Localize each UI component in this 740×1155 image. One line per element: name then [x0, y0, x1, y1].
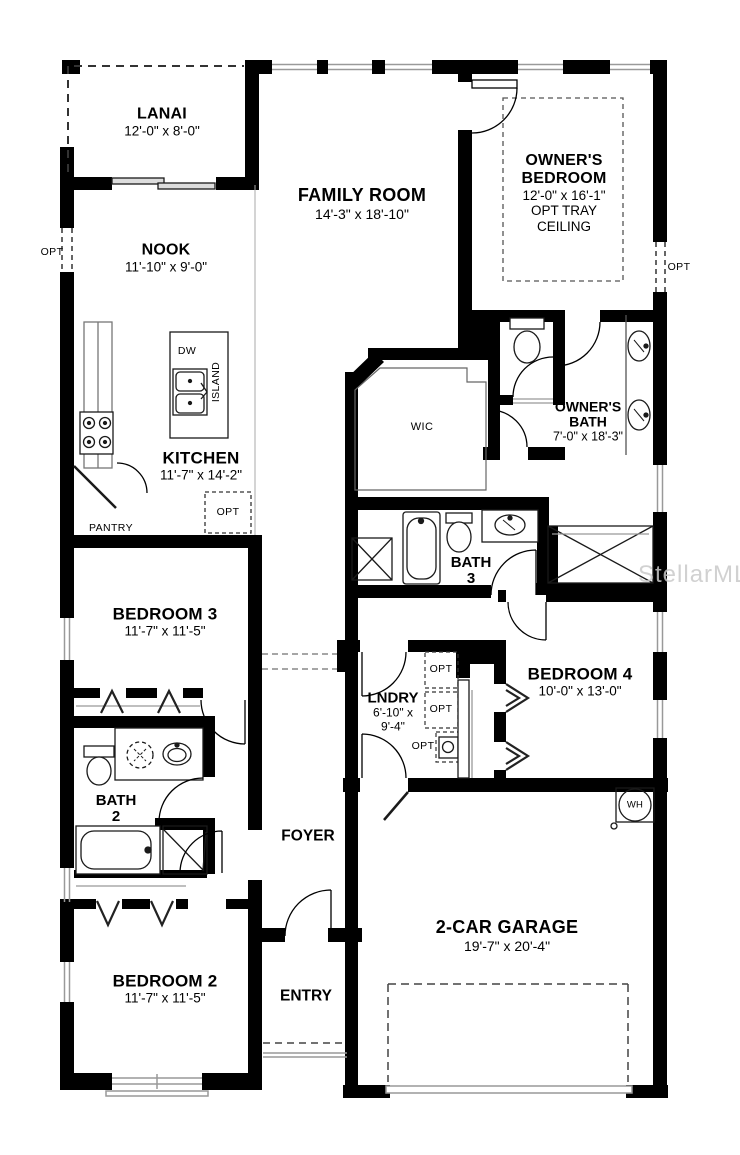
room-label-foyer: FOYER	[281, 829, 334, 846]
island-label: ISLAND	[210, 362, 222, 402]
bath2-door	[159, 778, 203, 822]
hall-closet	[163, 826, 207, 874]
closet-rod-icon	[158, 691, 180, 713]
room-label-owners-bath: OWNER'S BATH 7'-0" x 18'-3"	[553, 400, 623, 445]
room-label-entry: ENTRY	[280, 989, 332, 1006]
bifold-door-icon	[506, 684, 528, 712]
owners-vanity	[626, 315, 650, 455]
opt-label-laundry-1: OPT	[430, 663, 453, 675]
room-label-owners-bedroom: OWNER'S BEDROOM 12'-0" x 16'-1" OPT TRAY…	[522, 152, 607, 234]
floorplan-page: LANAI 12'-0" x 8'-0" FAMILY ROOM 14'-3" …	[0, 0, 740, 1155]
foyer-arch	[262, 654, 337, 669]
opt-label-left-wall: OPT	[41, 246, 64, 258]
room-label-kitchen: KITCHEN 11'-7" x 14'-2"	[160, 449, 242, 484]
toilet-room-sill	[513, 399, 553, 403]
opt-label-kitchen: OPT	[217, 506, 240, 518]
front-door	[285, 890, 331, 936]
bath3-sink-icon	[482, 510, 538, 542]
laundry-tub-icon	[439, 737, 458, 758]
room-label-bedroom-4: BEDROOM 4 10'-0" x 13'-0"	[528, 665, 633, 700]
room-label-family-room: FAMILY ROOM 14'-3" x 18'-10"	[298, 186, 426, 222]
stove-icon	[80, 412, 113, 454]
pantry-angled-wall	[74, 466, 116, 508]
room-label-bath-2: BATH 2	[96, 793, 137, 825]
opt-label-laundry-2: OPT	[430, 703, 453, 715]
bifold-door-icon	[506, 742, 528, 770]
island-sink-icon	[173, 369, 207, 415]
garage-door	[388, 984, 628, 1082]
garage-service-door-leaf	[384, 792, 408, 820]
toilet-room-door	[513, 357, 553, 397]
opt-label-right-wall: OPT	[668, 261, 691, 273]
owners-toilet-icon	[510, 318, 544, 363]
sliding-door	[112, 178, 215, 189]
pantry-door	[117, 463, 147, 493]
closet-rod-icon	[97, 901, 119, 925]
water-heater-label: WH	[627, 800, 643, 811]
bath3-door	[491, 550, 536, 595]
opt-label-laundry-3: OPT	[412, 740, 435, 752]
room-label-laundry: LNDRY 6'-10" x 9'-4"	[367, 690, 418, 733]
room-label-bath-3: BATH 3	[451, 555, 492, 587]
room-label-bedroom-3: BEDROOM 3 11'-7" x 11'-5"	[113, 605, 218, 640]
stellar-mls-watermark: StellarMLS	[638, 561, 740, 589]
room-label-nook: NOOK 11'-10" x 9'-0"	[125, 241, 207, 274]
room-label-garage: 2-CAR GARAGE 19'-7" x 20'-4"	[436, 918, 579, 954]
pantry-label: PANTRY	[89, 522, 133, 534]
closet-rod-icon	[101, 691, 123, 713]
bath2-vanity	[115, 728, 203, 780]
bath3-tub-icon	[403, 512, 440, 584]
room-label-lanai: LANAI 12'-0" x 8'-0"	[124, 105, 200, 138]
bath2-toilet-icon	[84, 746, 114, 785]
floorplan-drawing	[0, 0, 740, 1155]
room-label-wic: WIC	[411, 421, 434, 433]
room-label-bedroom-2: BEDROOM 2 11'-7" x 11'-5"	[113, 972, 218, 1007]
bath3-toilet-icon	[446, 513, 472, 552]
laundry-door-leaf	[458, 680, 469, 778]
entry-threshold	[263, 1043, 347, 1057]
closet-rod-icon	[151, 901, 173, 925]
owners-bedroom-door	[472, 80, 517, 133]
laundry-south-door	[362, 734, 406, 778]
dishwasher-label: DW	[178, 345, 196, 357]
bath2-tub-icon	[76, 826, 160, 874]
bedroom4-door	[508, 602, 546, 640]
